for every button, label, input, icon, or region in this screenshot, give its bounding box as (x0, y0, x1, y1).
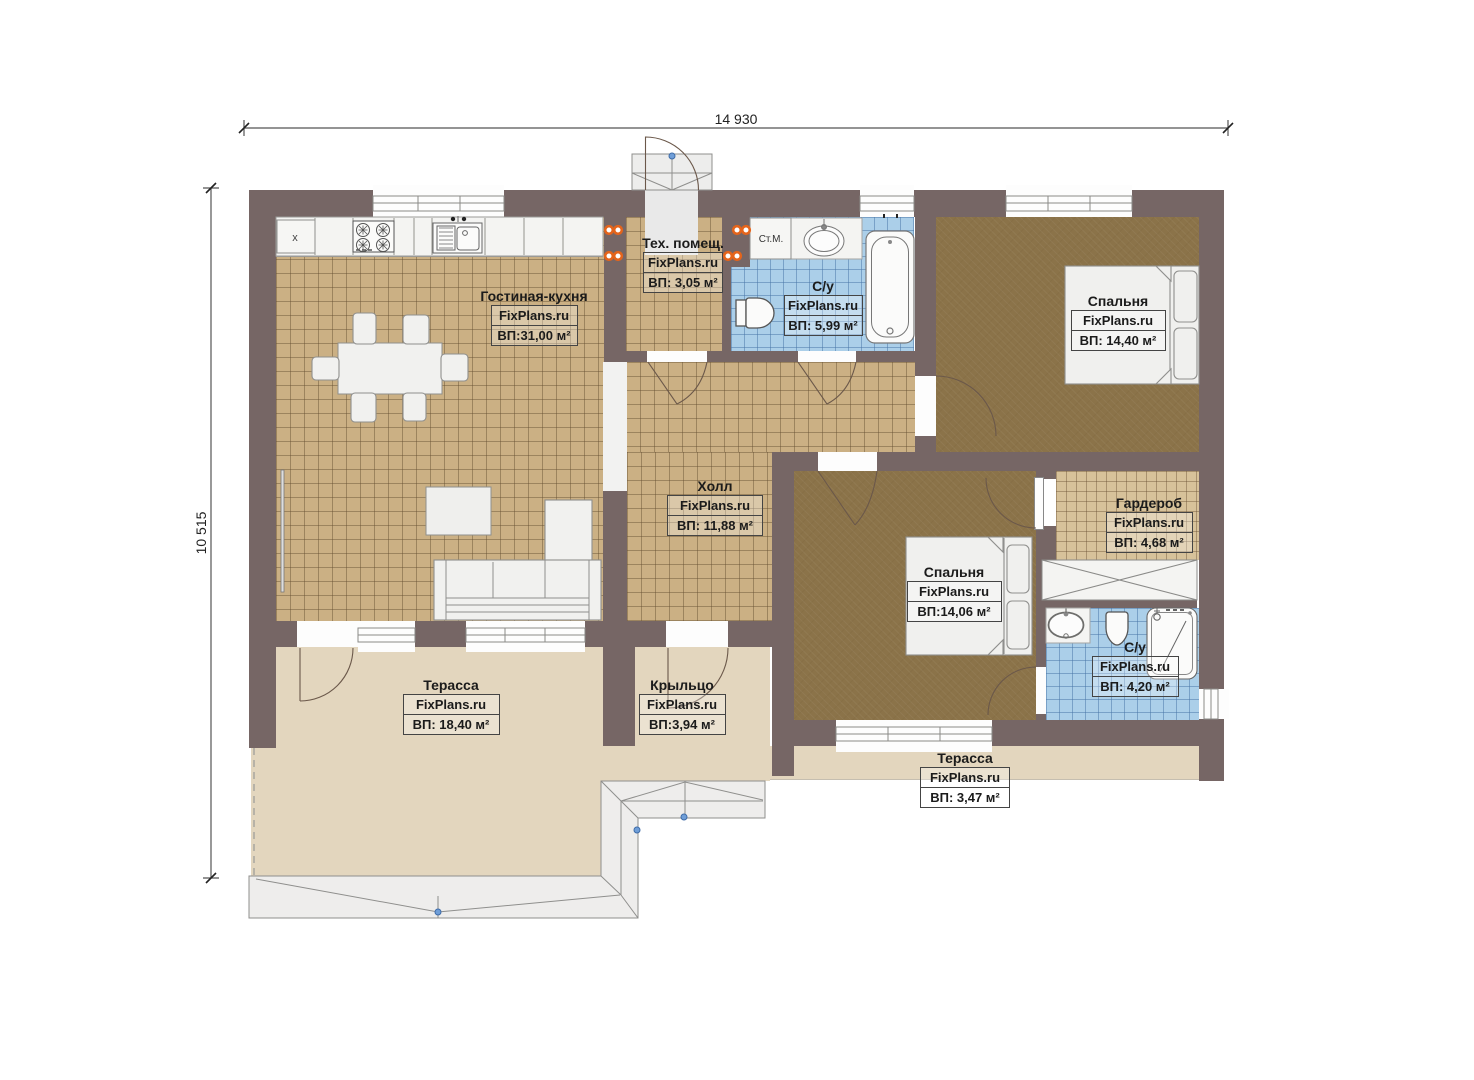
svg-text:14 930: 14 930 (715, 111, 758, 127)
svg-text:10 515: 10 515 (193, 511, 209, 554)
svg-text:Ст.М.: Ст.М. (759, 234, 784, 245)
svg-text:x: x (292, 232, 298, 244)
